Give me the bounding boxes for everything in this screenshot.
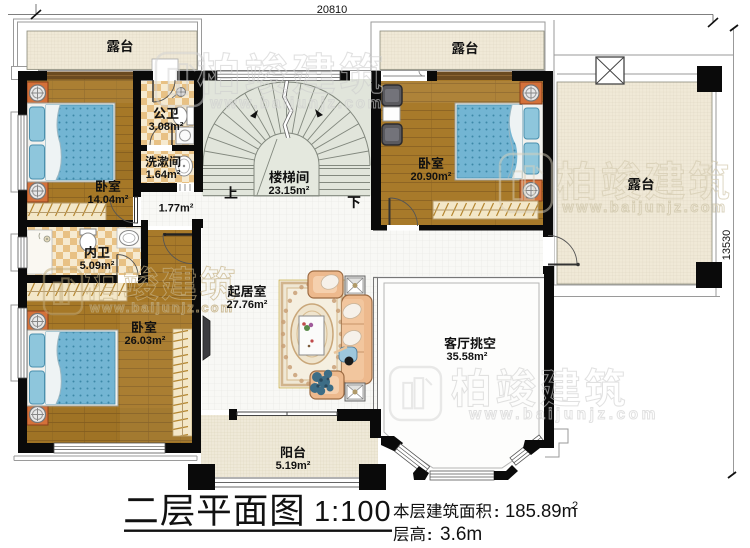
svg-text:www.baijunjz.com: www.baijunjz.com bbox=[468, 406, 659, 423]
svg-text:20.90m²: 20.90m² bbox=[411, 171, 452, 183]
svg-text:14.04m²: 14.04m² bbox=[88, 194, 129, 206]
svg-text:13530: 13530 bbox=[721, 230, 733, 261]
svg-text:23.15m²: 23.15m² bbox=[269, 185, 310, 197]
svg-text:5.09m²: 5.09m² bbox=[80, 260, 115, 272]
svg-text:185.89m: 185.89m bbox=[505, 500, 577, 521]
svg-text:2: 2 bbox=[572, 500, 578, 512]
svg-text:www.baijunjz.com: www.baijunjz.com bbox=[89, 300, 234, 315]
svg-text:3.08m²: 3.08m² bbox=[149, 121, 184, 133]
svg-text::: : bbox=[494, 504, 499, 521]
svg-text:3.6m: 3.6m bbox=[440, 524, 482, 545]
svg-text::: : bbox=[427, 527, 432, 544]
svg-text:20810: 20810 bbox=[317, 4, 348, 16]
svg-text:26.03m²: 26.03m² bbox=[125, 335, 166, 347]
svg-text:1.64m²: 1.64m² bbox=[146, 169, 181, 181]
svg-text:5.19m²: 5.19m² bbox=[276, 460, 311, 472]
svg-text:1:100: 1:100 bbox=[314, 496, 392, 528]
svg-text:www.baijunjz.com: www.baijunjz.com bbox=[561, 200, 727, 216]
svg-text:www.baijunjz.com: www.baijunjz.com bbox=[209, 95, 384, 112]
svg-text:27.76m²: 27.76m² bbox=[227, 299, 268, 311]
svg-text:1.77m²: 1.77m² bbox=[159, 203, 194, 215]
svg-text:35.58m²: 35.58m² bbox=[447, 351, 488, 363]
